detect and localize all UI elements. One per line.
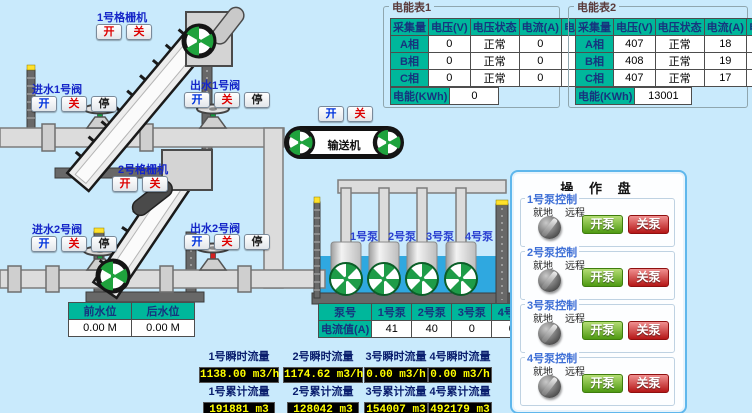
corner-cell: 泵号 [319, 304, 372, 321]
value-cell: 正常 [470, 53, 519, 70]
value-cell: 0.00 M [69, 320, 132, 337]
flow-label: 3号累计流量 [365, 383, 426, 399]
value-cell: 19 [704, 53, 746, 70]
value-cell: 408 [614, 53, 656, 70]
pump4-start-button[interactable]: 开泵 [582, 374, 623, 393]
row-label-cell: C相 [391, 70, 429, 87]
inlet1-stop-button[interactable]: 停 [91, 96, 117, 112]
energy-label-cell: 电能(KWh) [391, 88, 450, 105]
flow-value-display: 0.00 m3/h [364, 367, 428, 383]
value-cell: 正常 [470, 70, 519, 87]
flow-label: 1号累计流量 [208, 383, 269, 399]
pump2-mode-knob[interactable] [538, 269, 561, 292]
flow-value-display: 1174.62 m3/h [283, 367, 363, 383]
inlet1-open-button[interactable]: 开 [31, 96, 57, 112]
pump1-control-group: 1号泵控制 就地 远程 开泵 关泵 [520, 198, 675, 247]
pump1-mode-knob[interactable] [538, 216, 561, 239]
pump3-label: 3号泵 [426, 228, 454, 244]
energy-meter-2-table: 采集量 电压(V) 电压状态 电流(A) 电流状态 A相 407 正常 18 正… [575, 18, 752, 87]
value-cell: 0.00 M [132, 320, 195, 337]
header-cell: 2号泵 [412, 304, 452, 321]
grid1-fan-icon [184, 25, 214, 57]
inlet1-close-button[interactable]: 关 [61, 96, 87, 112]
header-cell: 后水位 [132, 303, 195, 320]
energy-value-cell: 0 [450, 88, 499, 105]
value-cell: 40 [412, 321, 452, 338]
row-label-cell: B相 [391, 53, 429, 70]
pump4-control-group: 4号泵控制 就地 远程 开泵 关泵 [520, 357, 675, 406]
grid2-label: 2号格栅机 [118, 161, 168, 177]
value-cell: 正常 [655, 70, 704, 87]
value-cell: 正常 [655, 36, 704, 53]
flow-value-display: 0.00 m3/h [428, 367, 492, 383]
value-cell: 0 [429, 36, 471, 53]
value-cell: 正常 [746, 36, 752, 53]
value-cell: 41 [372, 321, 412, 338]
outlet1-close-button[interactable]: 关 [214, 92, 240, 108]
pump4-stop-button[interactable]: 关泵 [628, 374, 669, 393]
pump-current-table: 泵号 1号泵 2号泵 3号泵 4号泵 电流值(A) 41 40 0 0 [318, 303, 532, 338]
header-cell: 1号泵 [372, 304, 412, 321]
knob-slot-icon [541, 218, 558, 238]
pump4-label: 4号泵 [465, 228, 493, 244]
conveyor-open-button[interactable]: 开 [318, 106, 344, 122]
outlet2-open-button[interactable]: 开 [184, 234, 210, 250]
flow-value-display: 154007 m3 [364, 402, 428, 413]
row-label-cell: A相 [576, 36, 614, 53]
flow-total-2: 2号累计流量 128042 m3 [283, 383, 363, 413]
knob-slot-icon [541, 271, 558, 291]
row-label-cell: 电流值(A) [319, 321, 372, 338]
flow-value-display: 128042 m3 [287, 402, 359, 413]
grid2-fan-icon [98, 260, 128, 292]
header-cell: 电压(V) [429, 19, 471, 36]
value-cell: 0 [429, 70, 471, 87]
inlet2-open-button[interactable]: 开 [31, 236, 57, 252]
grid1-close-button[interactable]: 关 [126, 24, 152, 40]
inlet2-stop-button[interactable]: 停 [91, 236, 117, 252]
value-cell: 18 [704, 36, 746, 53]
grid2-close-button[interactable]: 关 [142, 176, 168, 192]
pump3-start-button[interactable]: 开泵 [582, 321, 623, 340]
header-cell: 采集量 [391, 19, 429, 36]
pump2-stop-button[interactable]: 关泵 [628, 268, 669, 287]
value-cell: 0 [519, 70, 561, 87]
energy-label-cell: 电能(KWh) [576, 88, 635, 105]
flow-label: 4号瞬时流量 [429, 348, 490, 364]
knob-slot-icon [541, 324, 558, 344]
conveyor-wheel-left-icon [287, 128, 313, 156]
outlet2-stop-button[interactable]: 停 [244, 234, 270, 250]
energy-meter-1-box: 电能表1 采集量 电压(V) 电压状态 电流(A) 电流状态 A相 0 正常 0… [383, 6, 560, 108]
pump3-stop-button[interactable]: 关泵 [628, 321, 669, 340]
knob-slot-icon [541, 377, 558, 397]
flow-total-4: 4号累计流量 492179 m3 [420, 383, 500, 413]
grid1-open-button[interactable]: 开 [96, 24, 122, 40]
value-cell: 407 [614, 70, 656, 87]
grid2-open-button[interactable]: 开 [112, 176, 138, 192]
value-cell: 正常 [746, 70, 752, 87]
energy-meter-2-total: 电能(KWh) 13001 [575, 87, 692, 105]
flow-label: 1号瞬时流量 [208, 348, 269, 364]
pump4-mode-knob[interactable] [538, 375, 561, 398]
conveyor-close-button[interactable]: 关 [347, 106, 373, 122]
flow-total-1: 1号累计流量 191881 m3 [199, 383, 279, 413]
energy-value-cell: 13001 [635, 88, 692, 105]
pump2-label: 2号泵 [388, 228, 416, 244]
energy-meter-1-title: 电能表1 [389, 0, 434, 15]
header-cell: 3号泵 [452, 304, 492, 321]
flow-instant-1: 1号瞬时流量 1138.00 m3/h [199, 348, 279, 383]
energy-meter-1-total: 电能(KWh) 0 [390, 87, 499, 105]
flow-instant-4: 4号瞬时流量 0.00 m3/h [420, 348, 500, 383]
energy-meter-2-title: 电能表2 [574, 0, 619, 15]
flow-value-display: 492179 m3 [428, 402, 492, 413]
header-cell: 电压(V) [614, 19, 656, 36]
flow-value-display: 1138.00 m3/h [199, 367, 279, 383]
inlet1-label: 进水1号阀 [32, 81, 82, 97]
flow-label: 4号累计流量 [429, 383, 490, 399]
inlet2-close-button[interactable]: 关 [61, 236, 87, 252]
conveyor-label: 输送机 [312, 137, 376, 153]
tank-level-gauge [314, 197, 320, 298]
energy-meter-2-box: 电能表2 采集量 电压(V) 电压状态 电流(A) 电流状态 A相 407 正常… [568, 6, 748, 108]
header-cell: 电流(A) [704, 19, 746, 36]
inlet2-label: 进水2号阀 [32, 221, 82, 237]
pump3-mode-knob[interactable] [538, 322, 561, 345]
value-cell: 正常 [470, 36, 519, 53]
value-cell: 正常 [655, 53, 704, 70]
header-cell: 采集量 [576, 19, 614, 36]
pump1-start-button[interactable]: 开泵 [582, 215, 623, 234]
hmi-screen: 1号格栅机 开 关 进水1号阀 开 关 停 出水1号阀 开 关 停 2号格栅机 … [0, 0, 752, 413]
value-cell: 0 [519, 53, 561, 70]
outlet1-open-button[interactable]: 开 [184, 92, 210, 108]
value-cell: 407 [614, 36, 656, 53]
pump1-impeller-icon [330, 263, 362, 295]
outlet1-stop-button[interactable]: 停 [244, 92, 270, 108]
flow-label: 3号瞬时流量 [365, 348, 426, 364]
pump2-impeller-icon [368, 263, 400, 295]
header-cell: 电流状态 [746, 19, 752, 36]
pump1-stop-button[interactable]: 关泵 [628, 215, 669, 234]
header-cell: 前水位 [69, 303, 132, 320]
conveyor-wheel-right-icon [375, 128, 401, 156]
row-label-cell: C相 [576, 70, 614, 87]
pump3-impeller-icon [406, 263, 438, 295]
pump2-control-group: 2号泵控制 就地 远程 开泵 关泵 [520, 251, 675, 300]
flow-label: 2号瞬时流量 [292, 348, 353, 364]
flow-label: 2号累计流量 [292, 383, 353, 399]
flow-instant-2: 2号瞬时流量 1174.62 m3/h [283, 348, 363, 383]
outlet1-label: 出水1号阀 [190, 77, 240, 93]
water-level-table: 前水位 后水位 0.00 M 0.00 M [68, 302, 195, 337]
value-cell: 0 [452, 321, 492, 338]
pump1-label: 1号泵 [350, 228, 378, 244]
pump4-impeller-icon [445, 263, 477, 295]
row-label-cell: A相 [391, 36, 429, 53]
header-cell: 电流(A) [519, 19, 561, 36]
outlet2-close-button[interactable]: 关 [214, 234, 240, 250]
pump2-start-button[interactable]: 开泵 [582, 268, 623, 287]
value-cell: 0 [429, 53, 471, 70]
operation-panel: 操 作 盘 1号泵控制 就地 远程 开泵 关泵 2号泵控制 就地 远程 开泵 关… [510, 170, 687, 413]
row-label-cell: B相 [576, 53, 614, 70]
value-cell: 0 [519, 36, 561, 53]
grid1-label: 1号格栅机 [97, 9, 147, 25]
flow-value-display: 191881 m3 [203, 402, 275, 413]
value-cell: 17 [704, 70, 746, 87]
header-cell: 电压状态 [470, 19, 519, 36]
value-cell: 正常 [746, 53, 752, 70]
header-cell: 电压状态 [655, 19, 704, 36]
pump3-control-group: 3号泵控制 就地 远程 开泵 关泵 [520, 304, 675, 353]
